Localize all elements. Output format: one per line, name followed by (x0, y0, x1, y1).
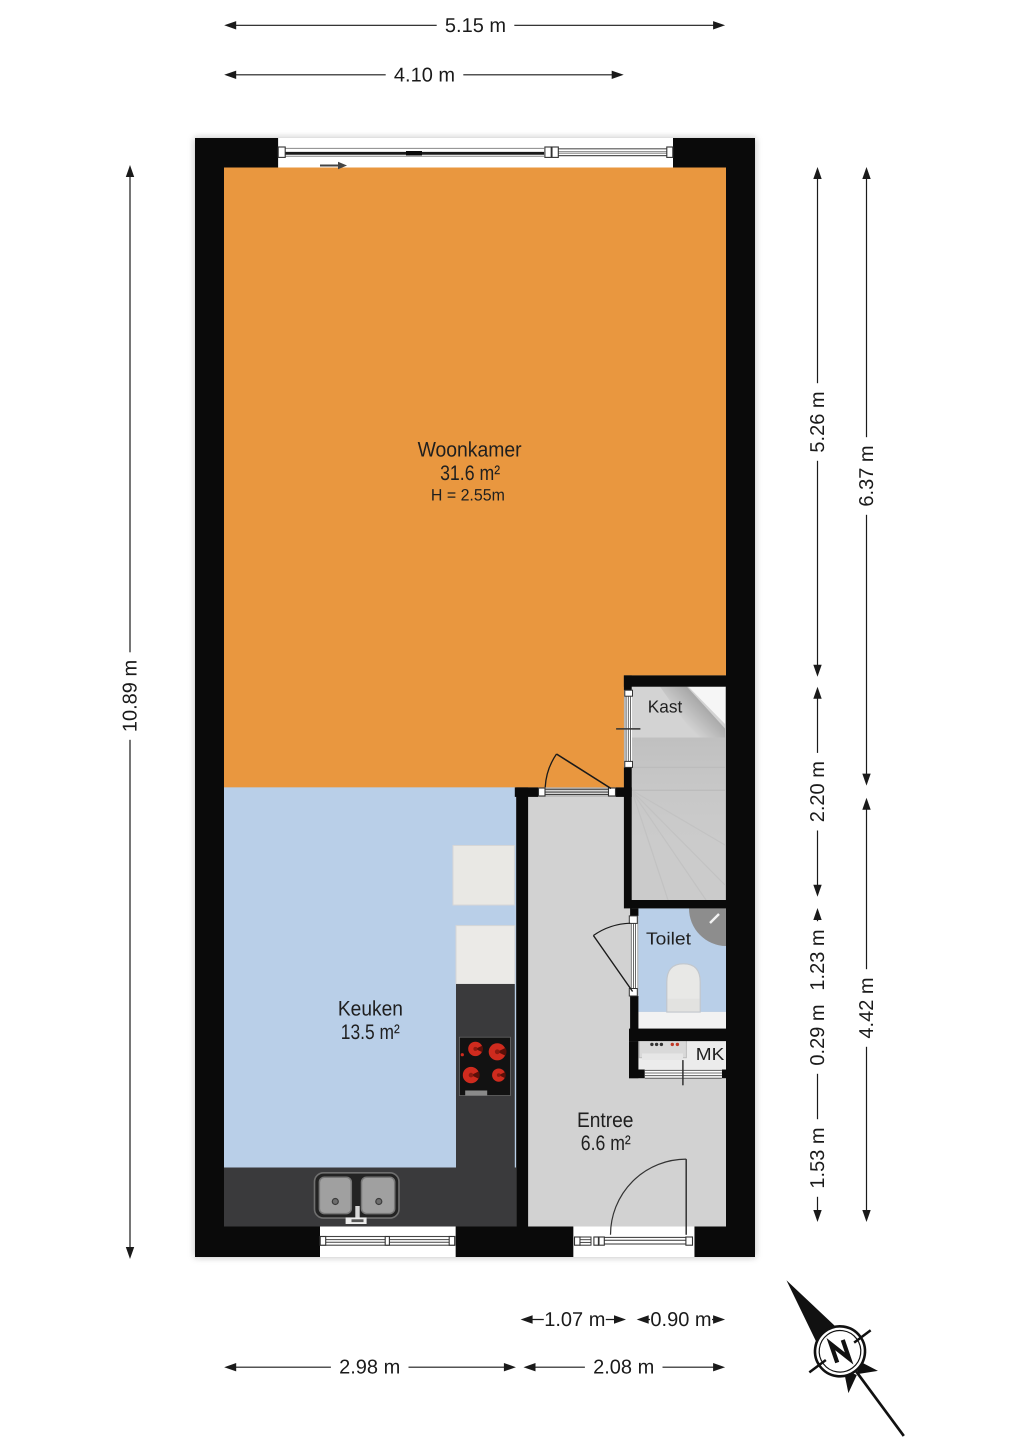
svg-text:13.5 m²: 13.5 m² (341, 1021, 400, 1044)
svg-text:5.15 m: 5.15 m (445, 15, 506, 37)
svg-text:MK: MK (696, 1044, 725, 1064)
svg-text:Toilet: Toilet (646, 928, 691, 948)
svg-text:Keuken: Keuken (338, 998, 403, 1021)
svg-text:5.26 m: 5.26 m (807, 391, 829, 452)
svg-text:6.6 m²: 6.6 m² (581, 1132, 631, 1155)
svg-text:4.42 m: 4.42 m (856, 977, 878, 1038)
svg-text:31.6 m²: 31.6 m² (440, 462, 500, 485)
svg-text:0.90 m: 0.90 m (650, 1309, 711, 1331)
svg-text:H = 2.55m: H = 2.55m (431, 487, 505, 505)
svg-text:2.08 m: 2.08 m (593, 1357, 654, 1379)
svg-text:Kast: Kast (648, 697, 683, 717)
svg-text:1.53 m: 1.53 m (807, 1127, 829, 1188)
svg-text:6.37 m: 6.37 m (856, 445, 878, 506)
svg-text:2.20 m: 2.20 m (807, 761, 829, 822)
svg-text:4.10 m: 4.10 m (394, 64, 455, 86)
svg-text:Woonkamer: Woonkamer (418, 438, 522, 461)
svg-text:1.07 m: 1.07 m (544, 1309, 605, 1331)
svg-text:2.98 m: 2.98 m (339, 1357, 400, 1379)
svg-text:Entree: Entree (577, 1109, 634, 1132)
svg-text:1.23 m: 1.23 m (807, 929, 829, 990)
svg-text:0.29 m: 0.29 m (807, 1004, 829, 1065)
svg-text:10.89 m: 10.89 m (120, 660, 142, 732)
